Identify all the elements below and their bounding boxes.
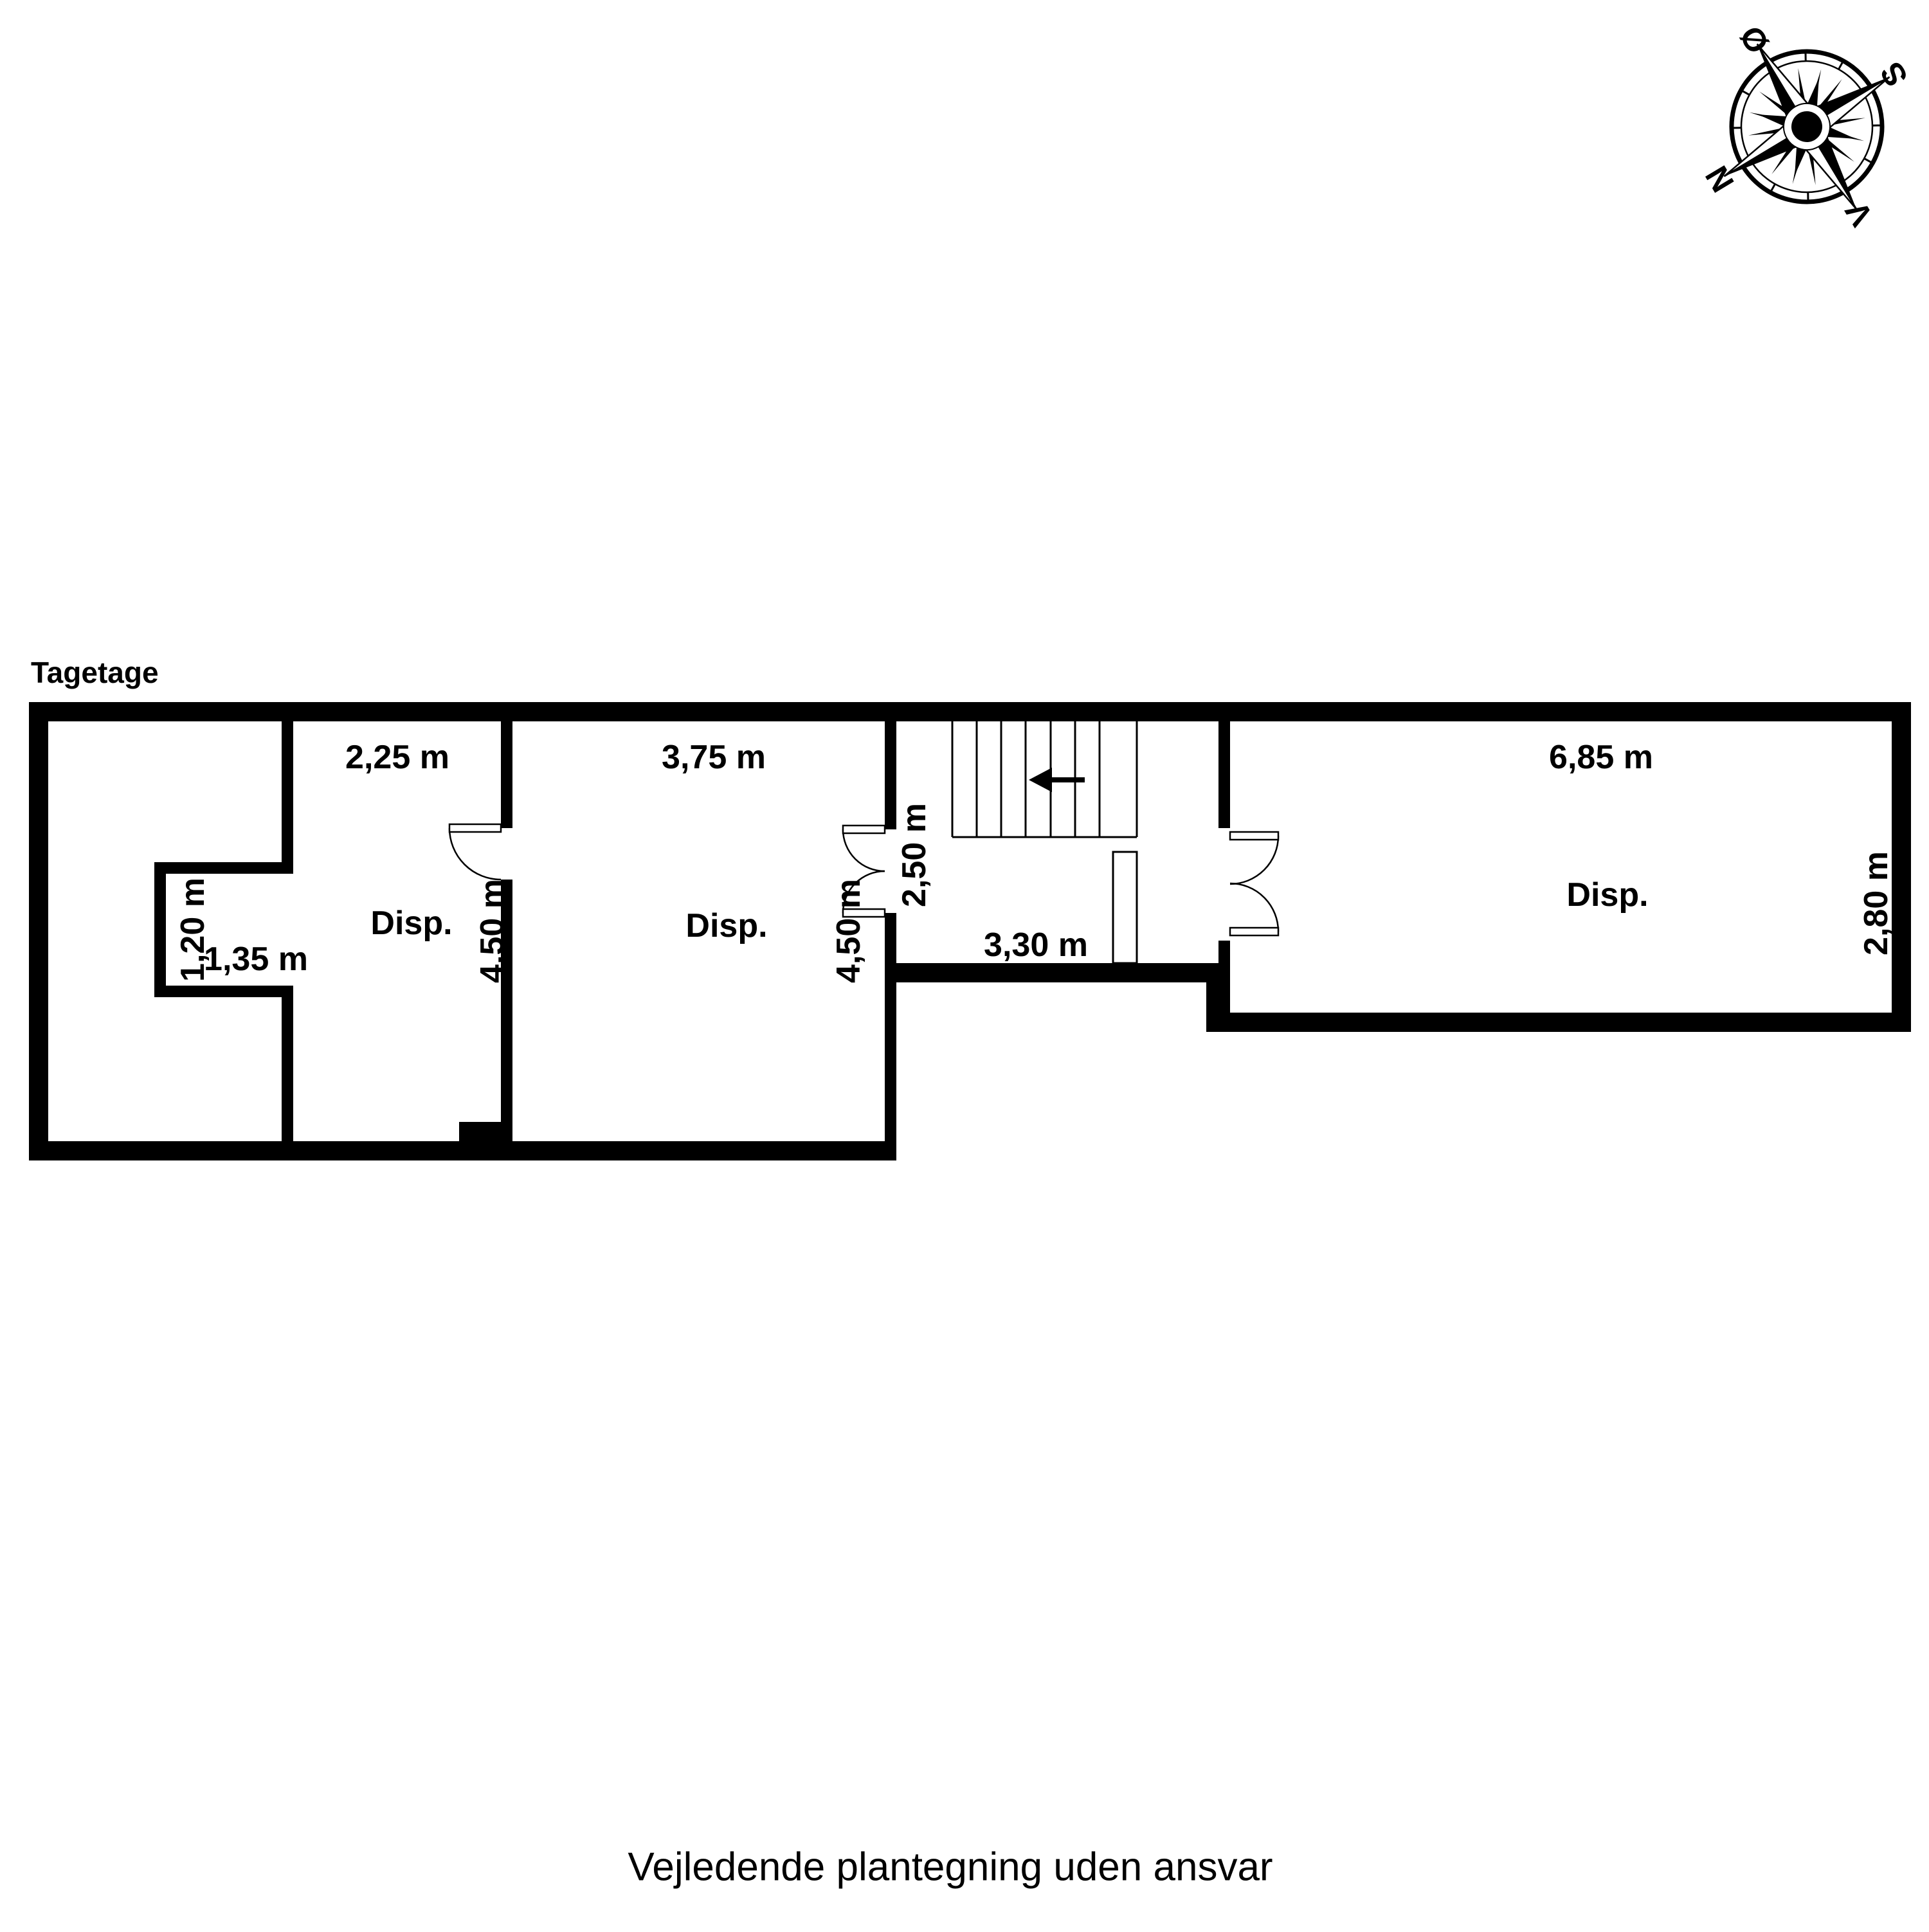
room-label-b: Disp. — [370, 905, 452, 942]
dim-room-d-width: 6,85 m — [1549, 739, 1653, 776]
chimney-block — [459, 1122, 512, 1160]
dim-hall-depth: 2,50 m — [896, 803, 933, 907]
floorplan-canvas: N Ø S V Tagetage — [0, 0, 1929, 1929]
door-leaf-top — [843, 826, 885, 833]
wall-b-c-upper — [501, 719, 512, 828]
dim-alcove-depth: 1,20 m — [174, 878, 212, 982]
wall-top — [29, 702, 1911, 721]
alcove-wall-left — [154, 862, 166, 997]
floorplan-page: N Ø S V Tagetage — [0, 0, 1929, 1929]
wall-hall-bottom — [885, 963, 1230, 982]
wall-hall-d-upper — [1218, 719, 1230, 828]
wall-a-b-lower — [282, 986, 293, 1141]
dim-room-c-depth: 4,50 m — [830, 879, 867, 983]
room-label-d: Disp. — [1566, 876, 1648, 914]
dim-room-d-depth: 2,80 m — [1858, 851, 1895, 955]
door-leaf — [449, 824, 501, 832]
floor-title: Tagetage — [31, 656, 159, 689]
door-leaf-top — [1230, 832, 1278, 840]
room-label-c: Disp. — [685, 907, 767, 944]
wall-a-b-upper — [282, 719, 293, 874]
wall-c-hall-lower — [885, 913, 896, 1160]
dim-room-b-width: 2,25 m — [345, 739, 449, 776]
wall-c-hall-upper — [885, 719, 896, 829]
dim-room-b-depth: 4,50 m — [474, 879, 511, 983]
dim-room-c-width: 3,75 m — [662, 739, 766, 776]
alcove-wall-top — [154, 862, 293, 874]
dim-hall-width: 3,30 m — [984, 926, 1088, 964]
door-leaf-bottom — [1230, 928, 1278, 935]
wall-bottom-right-section — [1206, 1013, 1911, 1032]
wall-left — [29, 702, 48, 1160]
disclaimer-caption: Vejledende plantegning uden ansvar — [628, 1845, 1272, 1890]
alcove-wall-bottom — [154, 986, 293, 997]
dim-alcove-width: 1,35 m — [204, 941, 308, 978]
